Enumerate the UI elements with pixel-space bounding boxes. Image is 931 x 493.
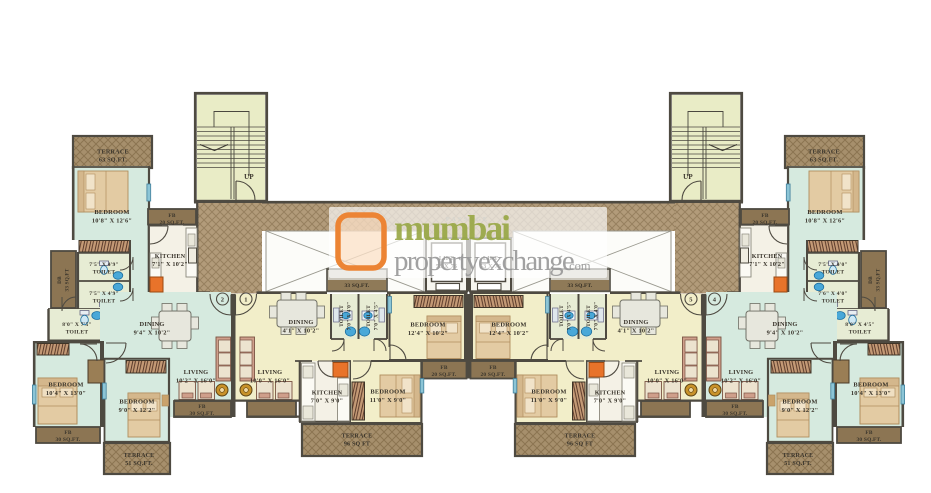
svg-text:KITCHEN7'0" X 9'0": KITCHEN7'0" X 9'0" — [594, 389, 626, 404]
svg-text:2: 2 — [221, 297, 224, 304]
svg-text:TOILET7'0" X 4'5": TOILET7'0" X 4'5" — [366, 302, 379, 331]
svg-text:7'5" X 4'0"TOILET: 7'5" X 4'0"TOILET — [818, 262, 848, 276]
svg-text:propertyexchange: propertyexchange — [394, 245, 574, 277]
svg-text:BEDROOM9'0" X 12'2": BEDROOM9'0" X 12'2" — [782, 399, 819, 414]
svg-text:mumbai: mumbai — [394, 208, 511, 248]
svg-text:KITCHEN7'1" X 10'2": KITCHEN7'1" X 10'2" — [152, 253, 188, 268]
svg-text:BEDROOM11'0" X 9'0": BEDROOM11'0" X 9'0" — [531, 389, 567, 404]
svg-text:TOILET7'0" X 4'0": TOILET7'0" X 4'0" — [339, 302, 352, 331]
svg-text:BEDROOM10'8" X 12'6": BEDROOM10'8" X 12'6" — [805, 209, 845, 224]
svg-text:TERRACE63 SQ.FT.: TERRACE63 SQ.FT. — [808, 148, 840, 163]
svg-text:.com: .com — [566, 259, 591, 273]
svg-text:5: 5 — [689, 297, 693, 304]
svg-text:BEDROOM10'4" X 13'0": BEDROOM10'4" X 13'0" — [851, 382, 891, 397]
svg-text:BEDROOM12'4" X 10'2": BEDROOM12'4" X 10'2" — [408, 322, 448, 337]
svg-text:TERRACE63 SQ.FT.: TERRACE63 SQ.FT. — [97, 148, 129, 163]
svg-text:KITCHEN7'1" X 10'2": KITCHEN7'1" X 10'2" — [749, 253, 785, 268]
svg-text:1: 1 — [244, 297, 247, 304]
svg-text:8'0" X 7'5"TOILET: 8'0" X 7'5"TOILET — [62, 322, 92, 336]
svg-text:33 SQ.FT.: 33 SQ.FT. — [345, 283, 370, 289]
svg-text:BEDROOM11'0" X 9'0": BEDROOM11'0" X 9'0" — [370, 389, 406, 404]
svg-text:TOILET7'0" X 4'5": TOILET7'0" X 4'5" — [559, 302, 572, 331]
svg-text:BEDROOM10'4" X 13'0": BEDROOM10'4" X 13'0" — [46, 382, 86, 397]
svg-text:BEDROOM12'4" X 10'2": BEDROOM12'4" X 10'2" — [489, 322, 529, 337]
svg-text:UP: UP — [244, 173, 254, 181]
svg-text:4: 4 — [713, 297, 717, 304]
svg-text:7'5" X 4'9"TOILET: 7'5" X 4'9"TOILET — [89, 262, 119, 276]
svg-text:UP: UP — [683, 173, 693, 181]
svg-text:BEDROOM9'0" X 12'2": BEDROOM9'0" X 12'2" — [119, 399, 156, 414]
svg-text:BEDROOM10'8" X 12'6": BEDROOM10'8" X 12'6" — [92, 209, 132, 224]
svg-text:8'0" X 4'5"TOILET: 8'0" X 4'5"TOILET — [845, 322, 875, 336]
svg-text:TOILET7'0" X 4'0": TOILET7'0" X 4'0" — [586, 302, 599, 331]
svg-text:KITCHEN7'0" X 9'0": KITCHEN7'0" X 9'0" — [311, 389, 343, 404]
svg-text:7'5" X 4'9"TOILET: 7'5" X 4'9"TOILET — [89, 291, 119, 305]
svg-text:33 SQ.FT.: 33 SQ.FT. — [568, 283, 593, 289]
svg-text:7'6" X 4'0"TOILET: 7'6" X 4'0"TOILET — [818, 291, 848, 305]
